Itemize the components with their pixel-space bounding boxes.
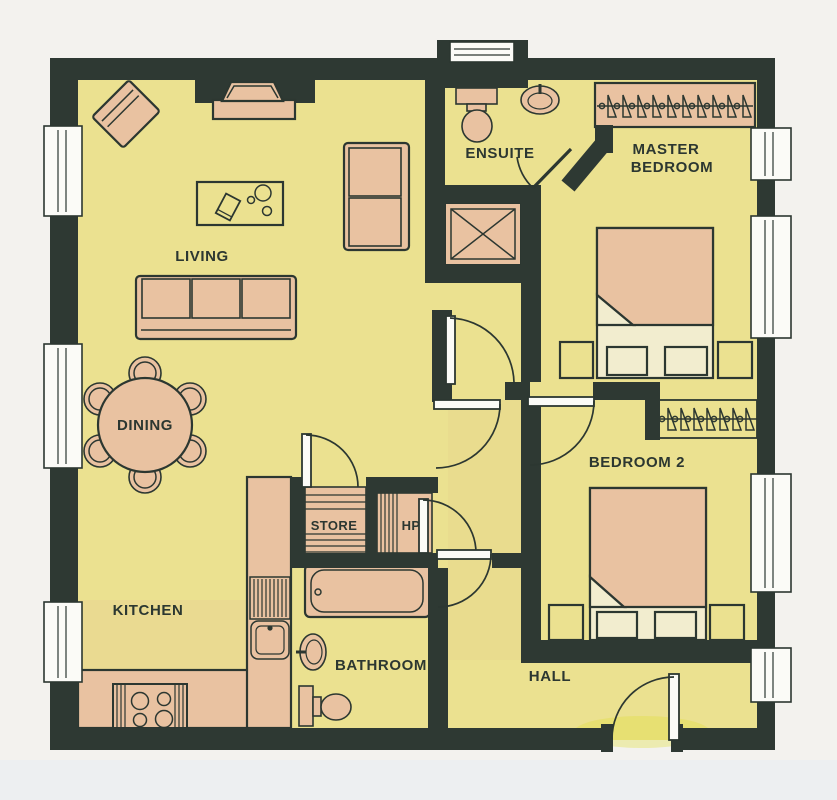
wall-bedroom2-north-east: [593, 382, 660, 400]
label-dining: DINING: [117, 417, 173, 434]
window-living: [44, 126, 82, 216]
wall-exterior-top-left: [50, 58, 437, 80]
wall-exterior-top-right: [528, 58, 775, 80]
window-ensuite-bay: [450, 42, 514, 62]
window-bedroom2: [751, 474, 791, 592]
wall-store-hp: [366, 477, 377, 557]
wall-bathroom-north-west: [291, 553, 438, 568]
wall-exterior-bottom-right: [683, 728, 775, 750]
sofa-three-seat: [136, 276, 296, 339]
shower: [445, 203, 521, 265]
floor-plan-drawing: LIVING DINING KITCHEN ENSUITE MASTER BED…: [0, 0, 837, 800]
door-leaf: [669, 674, 679, 740]
window-master-small: [751, 128, 791, 180]
bathtub: [305, 565, 430, 617]
sofa-cushion: [349, 148, 401, 196]
page-bottom-margin: [0, 760, 837, 800]
label-master-line1: MASTER: [633, 141, 700, 158]
door-leaf: [446, 316, 455, 384]
master-wardrobe: [595, 83, 755, 127]
wall-bedroom2-south: [521, 640, 757, 663]
pillow: [597, 612, 637, 638]
wall-living-ensuite: [425, 80, 445, 283]
wall-bathroom-north-east: [492, 553, 521, 568]
duvet: [590, 488, 706, 607]
kitchen-hob: [113, 684, 187, 728]
wall-bedroom2-wardrobe-side: [645, 400, 660, 440]
wall-hp-north: [377, 477, 438, 493]
label-master-line2: BEDROOM: [631, 159, 714, 176]
wall-shower-north: [445, 185, 541, 203]
bedroom2-bed: [590, 488, 706, 640]
label-store: STORE: [311, 518, 358, 533]
door-leaf: [528, 397, 594, 406]
corridor-floor-tint: [448, 400, 521, 660]
pillow: [655, 612, 696, 638]
sofa-two-seat: [344, 143, 409, 250]
toilet-bowl: [321, 694, 351, 720]
sink-tap: [267, 625, 272, 630]
master-bed: [597, 228, 713, 378]
sofa-cushion: [349, 198, 401, 246]
label-bathroom: BATHROOM: [335, 657, 427, 674]
wall-exterior-bottom-left: [50, 728, 601, 750]
hearth: [213, 100, 295, 119]
window-kitchen: [44, 602, 82, 682]
window-hall: [751, 648, 791, 702]
wall-bedroom2-north-west: [505, 382, 530, 400]
pillow: [665, 347, 707, 375]
window-dining: [44, 344, 82, 468]
toilet-cistern: [456, 88, 497, 104]
label-hp: HP: [402, 518, 421, 533]
door-leaf: [437, 550, 491, 559]
label-kitchen: KITCHEN: [113, 602, 184, 619]
door-leaf: [302, 434, 311, 487]
pillow: [607, 347, 647, 375]
label-hall: HALL: [529, 668, 571, 685]
sofa-cushion: [242, 279, 290, 318]
wall-bedroom2-west: [521, 400, 541, 663]
door-leaf: [434, 400, 500, 409]
floor-plan-page: LIVING DINING KITCHEN ENSUITE MASTER BED…: [0, 0, 837, 800]
toilet-cistern: [299, 686, 313, 726]
wall-kitchen-store: [291, 477, 305, 560]
label-bedroom2: BEDROOM 2: [589, 454, 685, 471]
sofa-cushion: [192, 279, 240, 318]
wall-bathroom-east: [428, 568, 448, 728]
toilet-bowl: [462, 110, 492, 142]
wall-master-west: [521, 203, 541, 382]
label-ensuite: ENSUITE: [465, 145, 534, 162]
sofa-cushion: [142, 279, 190, 318]
label-living: LIVING: [175, 248, 229, 265]
window-master-large: [751, 216, 791, 338]
